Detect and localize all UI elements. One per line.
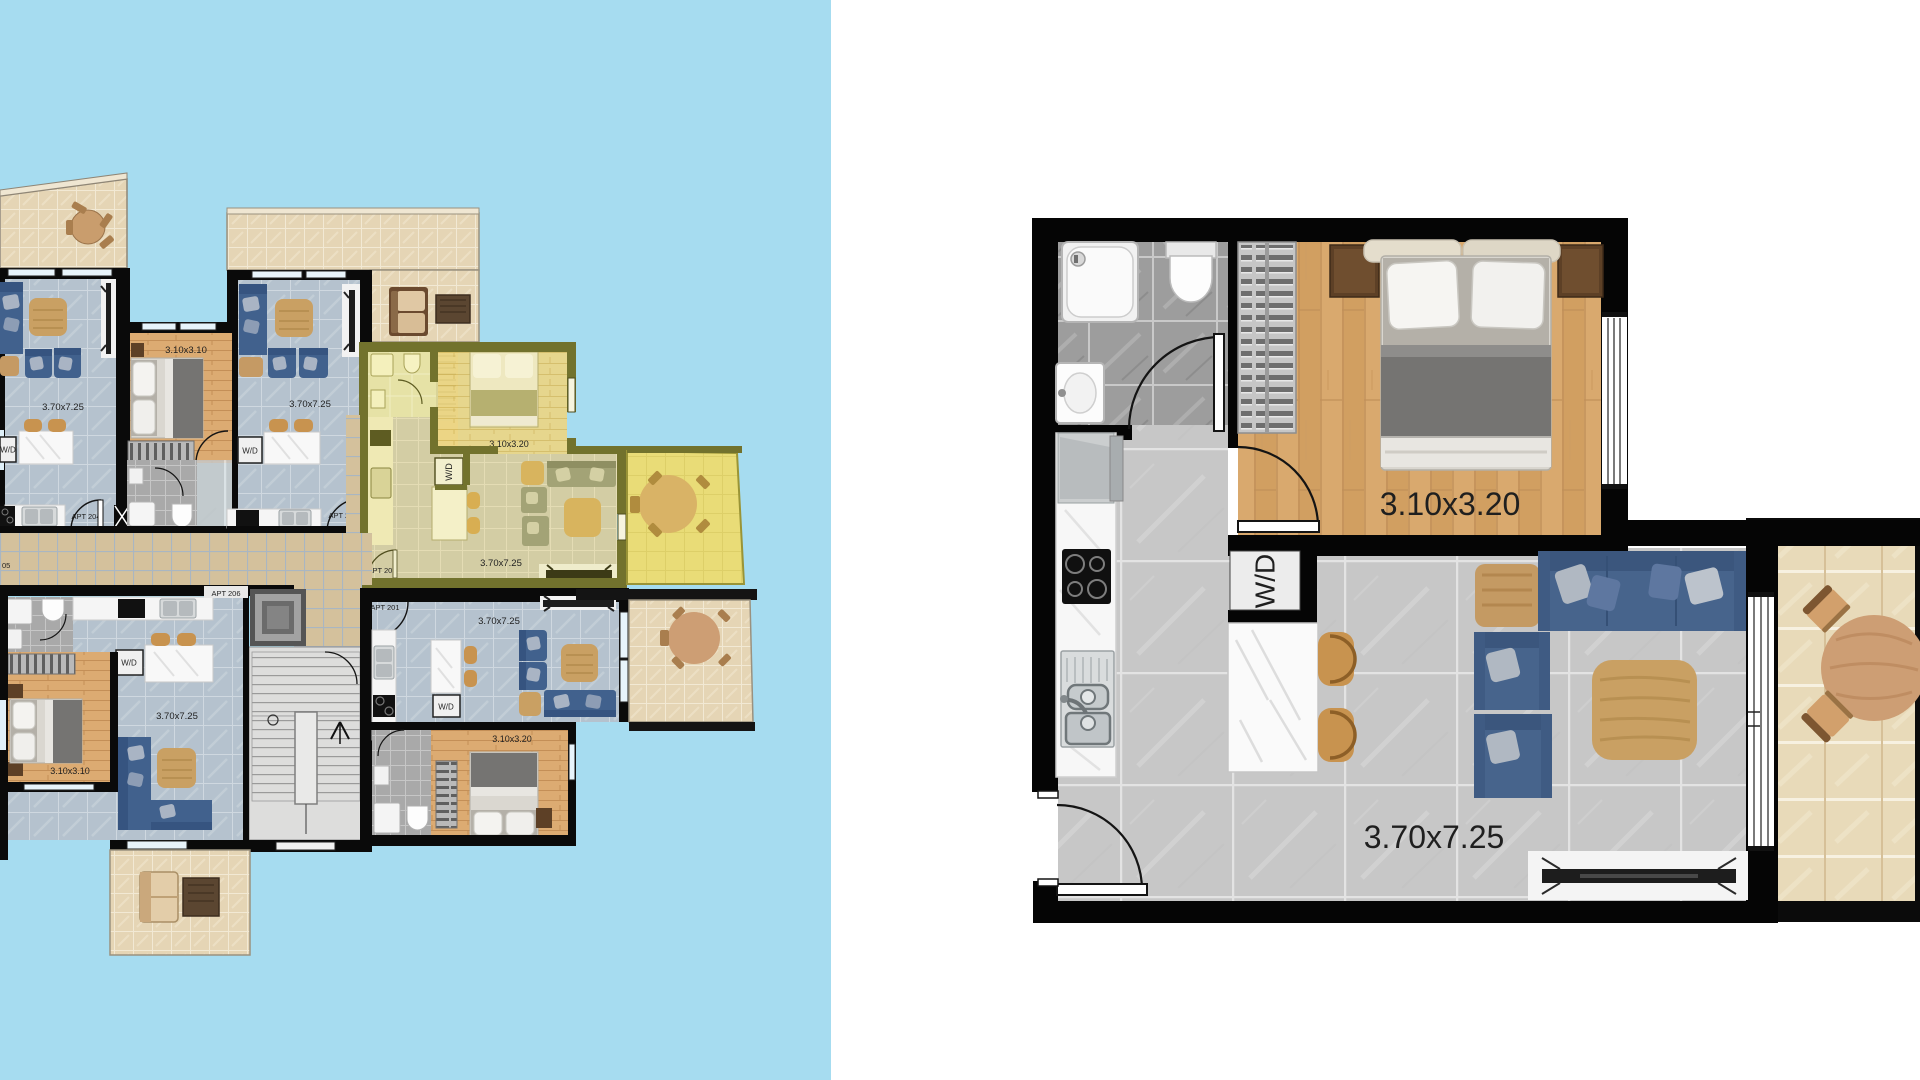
- svg-text:3.10x3.10: 3.10x3.10: [165, 345, 207, 356]
- svg-text:3.70x7.25: 3.70x7.25: [480, 558, 522, 569]
- svg-text:W/D: W/D: [0, 446, 16, 455]
- svg-text:3.10x3.20: 3.10x3.20: [1380, 486, 1521, 522]
- svg-text:3.70x7.25: 3.70x7.25: [42, 402, 84, 413]
- svg-text:W/D: W/D: [444, 463, 454, 481]
- svg-text:W/D: W/D: [1250, 554, 1281, 608]
- svg-text:W/D: W/D: [121, 659, 137, 668]
- svg-text:3.10x3.20: 3.10x3.20: [492, 734, 532, 744]
- svg-text:3.70x7.25: 3.70x7.25: [1364, 819, 1505, 855]
- svg-text:3.70x7.25: 3.70x7.25: [478, 616, 520, 627]
- svg-text:3.70x7.25: 3.70x7.25: [289, 399, 331, 410]
- svg-text:3.10x3.10: 3.10x3.10: [50, 766, 90, 776]
- svg-text:05: 05: [2, 561, 10, 570]
- svg-text:W/D: W/D: [242, 447, 258, 456]
- svg-text:APT 201: APT 201: [370, 603, 399, 612]
- svg-text:APT 206: APT 206: [211, 589, 240, 598]
- svg-text:3.70x7.25: 3.70x7.25: [156, 711, 198, 722]
- svg-text:W/D: W/D: [438, 703, 454, 712]
